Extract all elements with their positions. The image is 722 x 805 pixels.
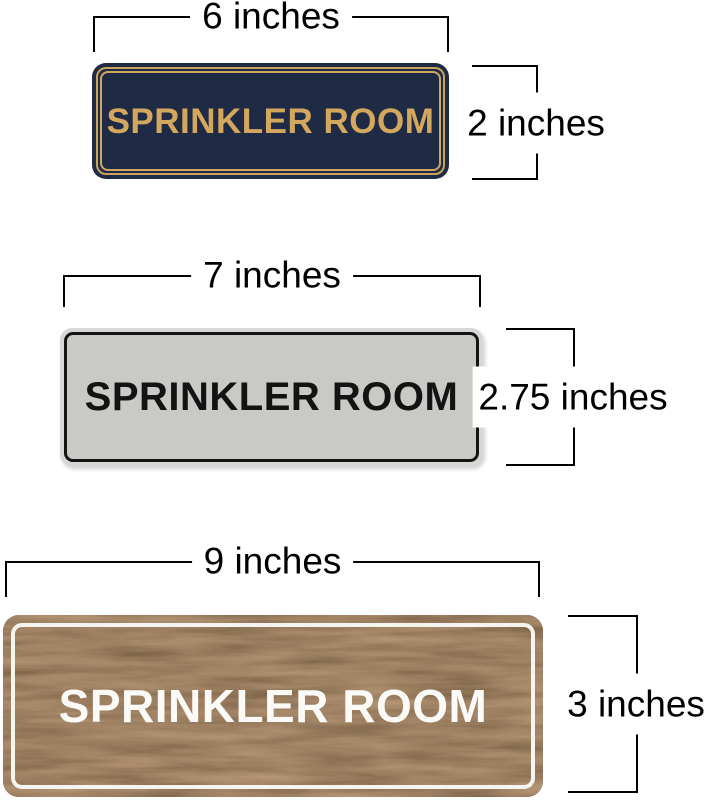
width-dimension-bracket-7in: 7 inches	[63, 275, 481, 307]
height-dimension-label: 3 inches	[561, 674, 711, 735]
sign-text: SPRINKLER ROOM	[107, 104, 435, 139]
width-dimension-label: 6 inches	[190, 0, 352, 37]
sign-size-comparison-image: 6 inches SPRINKLER ROOM 2 inches 7 inche…	[0, 0, 722, 805]
sprinkler-sign-silver: SPRINKLER ROOM	[60, 328, 483, 466]
width-dimension-bracket-9in: 9 inches	[5, 561, 540, 597]
height-dimension-bracket-3in: 3 inches	[568, 615, 638, 793]
sprinkler-sign-navy: SPRINKLER ROOM	[92, 63, 449, 179]
height-dimension-label: 2 inches	[461, 92, 611, 153]
sign-text: SPRINKLER ROOM	[85, 377, 459, 417]
width-dimension-label: 9 inches	[192, 541, 354, 582]
height-dimension-bracket-2in: 2 inches	[472, 65, 538, 180]
width-dimension-bracket-6in: 6 inches	[93, 16, 449, 52]
height-dimension-bracket-2-75in: 2.75 inches	[506, 328, 575, 466]
sprinkler-sign-walnut: SPRINKLER ROOM	[3, 615, 543, 797]
sign-text: SPRINKLER ROOM	[59, 683, 488, 729]
width-dimension-label: 7 inches	[191, 255, 353, 296]
height-dimension-label: 2.75 inches	[472, 367, 673, 428]
